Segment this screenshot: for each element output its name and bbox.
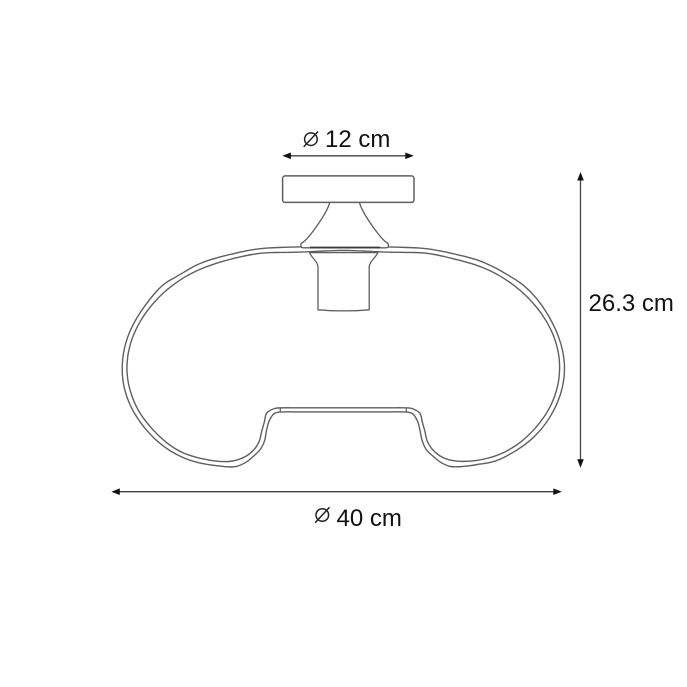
svg-text:12 cm: 12 cm (325, 126, 390, 153)
svg-text:26.3 cm: 26.3 cm (589, 290, 674, 317)
svg-text:40 cm: 40 cm (337, 505, 402, 532)
